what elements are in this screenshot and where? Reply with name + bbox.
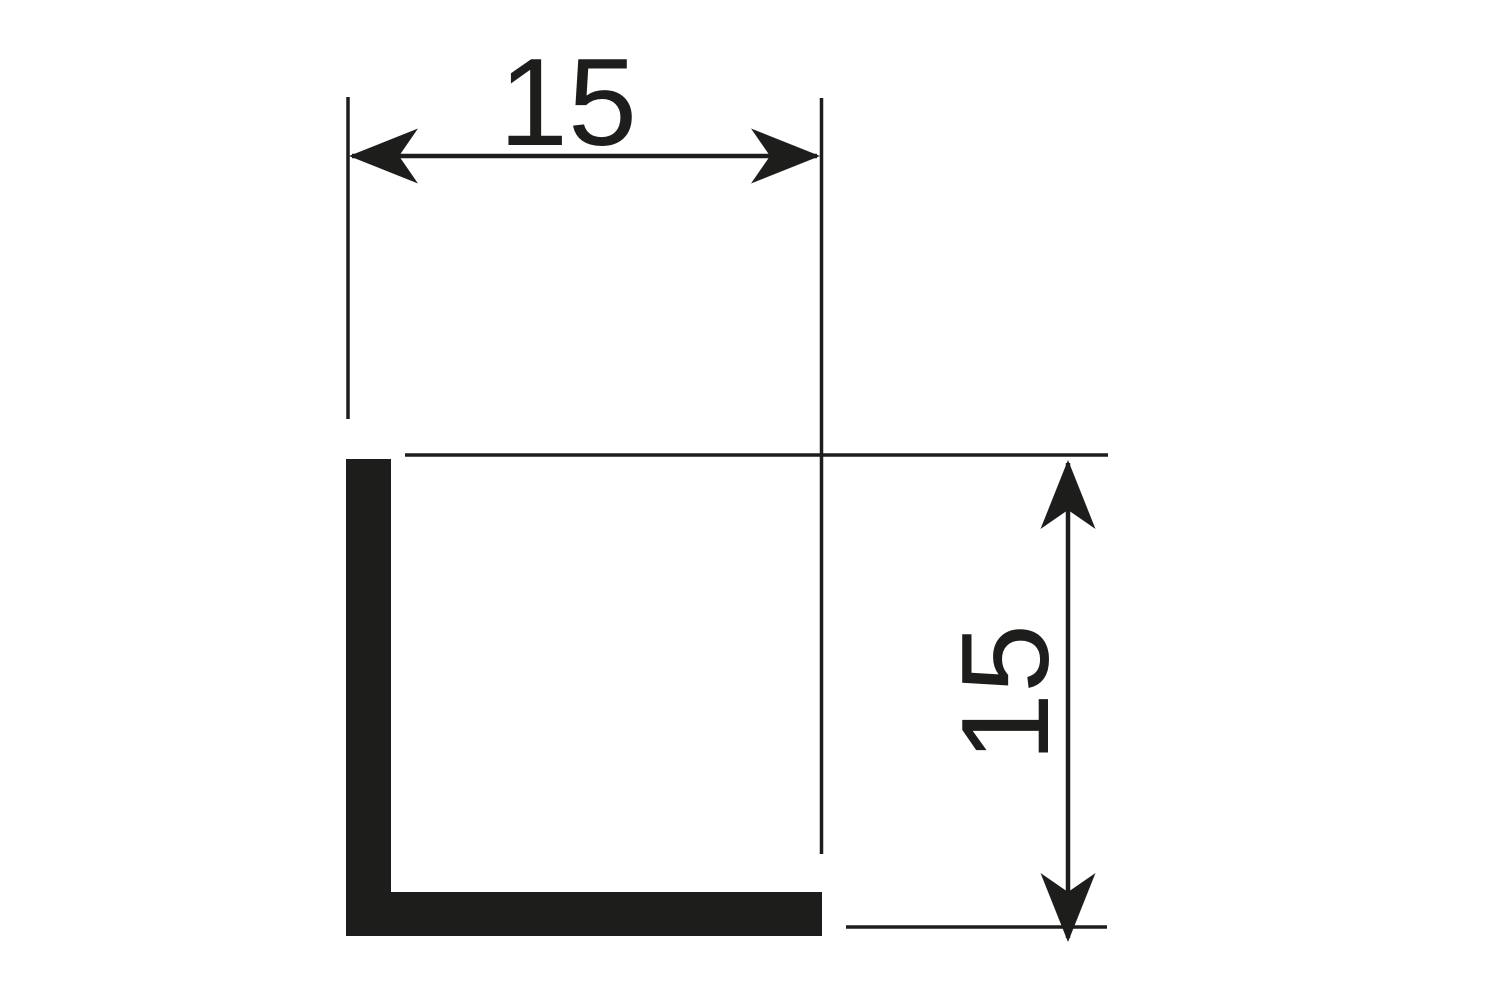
l-profile-shape [346, 459, 822, 936]
drawing-canvas: 15 15 [0, 0, 1500, 1000]
height-dimension-label: 15 [937, 624, 1075, 762]
width-dimension-label: 15 [499, 34, 637, 172]
angle-profile-dimension-drawing: 15 15 [0, 0, 1500, 1000]
